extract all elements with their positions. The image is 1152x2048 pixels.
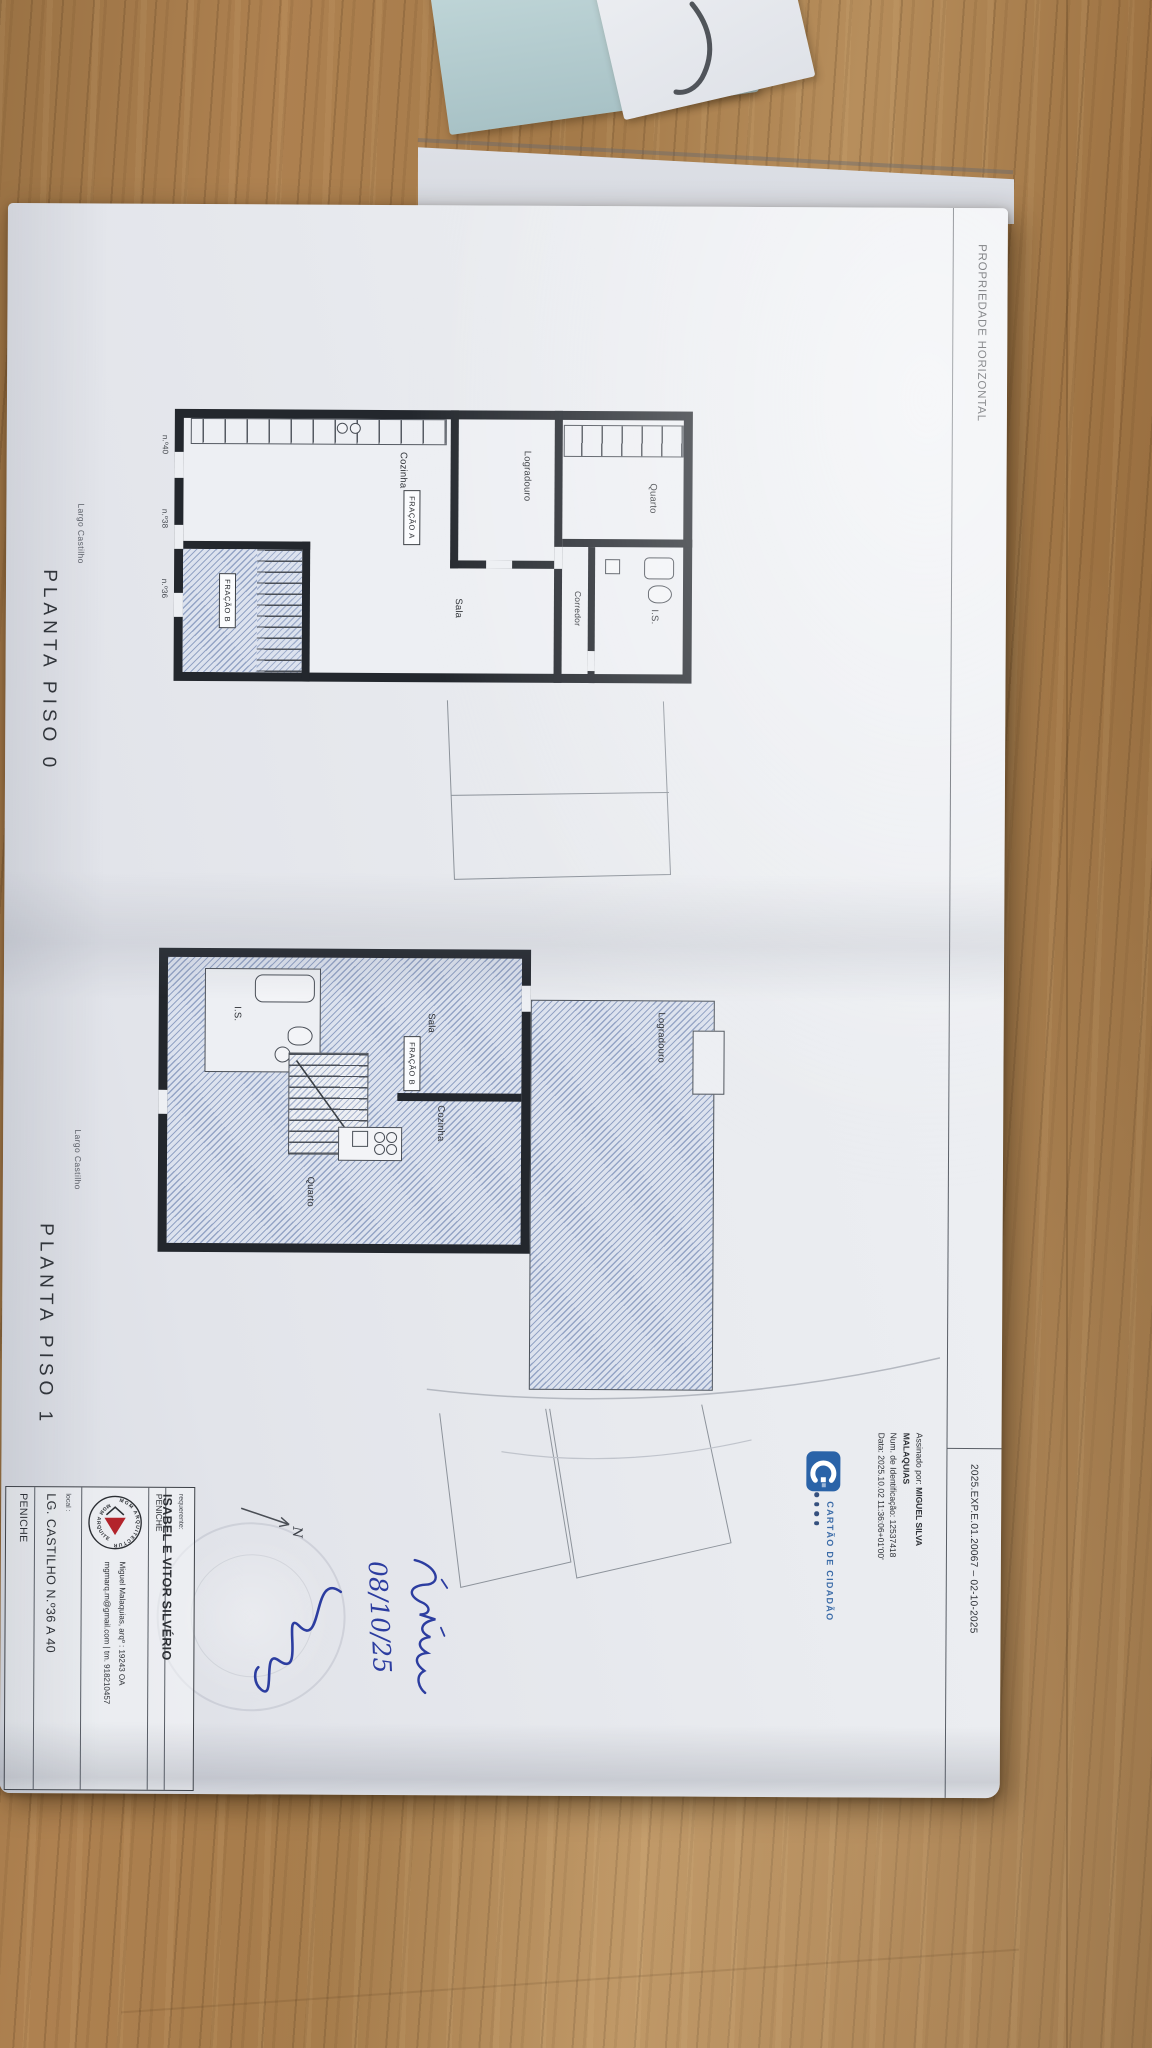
door-number: n.º36 [160,579,169,599]
door-opening [486,561,512,569]
sink-basin [350,423,361,434]
floor-plan-piso-0: Quarto I.S. Corredor Logradouro Sala Coz… [147,397,701,700]
title-block-architect-row: MGM ARQUITECTURA MGM ARQUITECTURA Miguel… [80,1487,149,1789]
local-value: LG. CASTILHO N.º36 A 40 [43,1493,59,1783]
architect-contact-line1: Miguel Malaquias, arqº : 19243 OA [114,1562,130,1705]
fracao-a-box: FRAÇÃO A [403,490,420,545]
plan0-wall [562,539,692,548]
door-opening [522,986,531,1012]
document-sheet: PROPRIEDADE HORIZONTAL 2025.EXP.E.01.200… [0,203,1008,1798]
signer-name: MIGUEL SILVA [914,1487,924,1546]
room-label-cozinha: Cozinha [398,452,409,488]
mgm-architect-logo-icon: MGM ARQUITECTURA MGM ARQUITECTURA [86,1493,144,1551]
cable-curve-icon [640,0,810,110]
signature-flourish [254,1584,341,1695]
plan1-annex [692,1031,724,1095]
street-door [175,452,184,478]
plan0-wardrobe [564,425,684,458]
signer-name-2: MALAQUIAS [902,1433,912,1485]
citizen-card-mark: CARTÃO DE CIDADÃO [805,1450,842,1621]
local-city: PENICHE [17,1493,29,1543]
title-block-local-city-row: PENICHE [4,1487,35,1789]
room-label-logradouro: Logradouro [656,1012,667,1063]
page-reference: 2025.EXP.E.01.20067 – 02-10-2025 [968,1464,980,1634]
floor-plan-piso-1: Logradouro Sala [141,940,721,1403]
plan0-kitchen-counter [191,418,447,445]
room-label-sala: Sala [453,598,464,618]
plan1-wall [397,1093,521,1102]
bathtub-fixture [255,974,315,1002]
room-label-quarto: Quarto [305,1177,316,1207]
digital-signature-block: Assinado por: MIGUEL SILVA MALAQUIAS Num… [873,1433,925,1673]
page-title: PROPRIEDADE HORIZONTAL [975,244,988,422]
fracao-b-box: FRAÇÃO B [219,573,236,628]
toilet-fixture [288,1026,313,1045]
plan0-wall [450,410,459,568]
door-opening [588,651,595,671]
room-label-sala: Sala [426,1013,437,1033]
stove-burner [374,1144,385,1155]
citizen-card-dots [814,1492,819,1621]
title-block: requerente: ISABEL E VITOR SILVÉRIO PENI… [4,1486,196,1791]
street-door [174,525,183,549]
street-door [174,593,183,617]
room-label-logradouro: Logradouro [521,451,532,502]
plan1-logradouro-area [529,1000,715,1391]
kitchen-sink [352,1131,368,1147]
room-label-is: I.S. [232,1006,243,1021]
toilet-fixture [648,585,672,603]
local-label: local : [64,1493,71,1511]
wood-plank-seam [121,1949,1019,2014]
bidet-fixture [605,559,620,574]
room-label-cozinha: Cozinha [435,1105,446,1141]
street-door [158,1090,167,1114]
door-number: n.º40 [161,435,170,455]
title-block-city-row: PENICHE [147,1488,166,1790]
signed-by-label: Assinado por: [914,1433,924,1485]
signature-date: Data: 2025.10.02 11:36:06+01'00' [873,1433,887,1673]
stove-burner [386,1144,397,1155]
citizen-card-label: CARTÃO DE CIDADÃO [825,1501,842,1621]
door-number: n.º38 [160,509,169,529]
plan0-wall [301,542,310,682]
requester-label: requerente: [177,1494,184,1530]
header-band: PROPRIEDADE HORIZONTAL 2025.EXP.E.01.200… [945,208,1008,1798]
sink-basin [337,423,348,434]
citizen-card-logo-icon [805,1450,841,1492]
room-label-corredor: Corredor [573,591,583,626]
requester-city: PENICHE [154,1494,164,1532]
handwritten-date: 08/10/25 [363,1560,397,1674]
fracao-b-box: FRAÇÃO B [403,1036,420,1091]
signer-id: Num. de Identificação: 12537418 [886,1433,900,1673]
title-block-local-row: local : LG. CASTILHO N.º36 A 40 [33,1487,82,1789]
room-label-quarto: Quarto [647,483,658,513]
plan-caption-piso-0: PLANTA PISO 0 [37,569,60,772]
photo-background: PROPRIEDADE HORIZONTAL 2025.EXP.E.01.200… [0,0,1152,2048]
plan0-stairs [257,549,303,672]
street-label-piso1: Largo Castilho [73,1129,83,1189]
stove-burner [386,1132,397,1143]
handwritten-signature: 08/10/25 [243,1529,468,1811]
plan-caption-piso-1: PLANTA PISO 1 [34,1223,57,1426]
door-opening [554,547,562,569]
sink-fixture [644,557,674,579]
stove-burner [374,1132,385,1143]
header-divider [947,1448,1001,1449]
architect-contact-line2: mgmarq.m@gmail.com | tm. 918210457 [99,1561,115,1704]
wood-plank-seam [1066,0,1068,2048]
title-block-requester-row: requerente: ISABEL E VITOR SILVÉRIO [164,1488,195,1790]
street-label-piso0: Largo Castilho [76,503,86,563]
room-label-is: I.S. [649,609,660,624]
